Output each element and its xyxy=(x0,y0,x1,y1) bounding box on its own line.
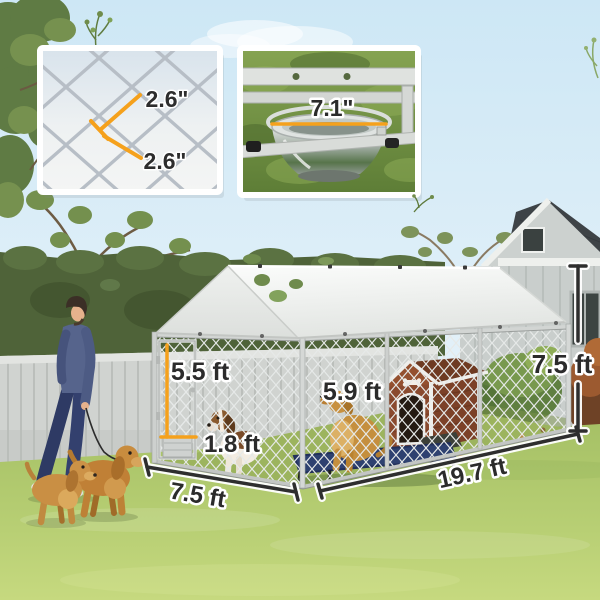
knob xyxy=(246,141,261,152)
house-attic-window xyxy=(522,228,544,252)
door-latch xyxy=(191,388,196,393)
scene: 5.5 ft 1.8 ft 5.9 ft 7.5 ft 19.7 ft 7.5 … xyxy=(0,0,600,600)
door-kick-panel xyxy=(163,436,192,457)
mesh-size-bottom-label: 2.6" xyxy=(144,148,187,174)
interior-height-label: 5.9 ft xyxy=(323,378,382,406)
hand xyxy=(81,402,89,410)
bowl-diameter-label: 7.1" xyxy=(311,95,354,121)
rail-hole xyxy=(344,73,351,80)
door-height-label: 5.5 ft xyxy=(171,358,230,386)
knob xyxy=(385,138,399,148)
door-width-label: 1.8 ft xyxy=(204,431,260,458)
chain-link-closeup xyxy=(30,40,230,200)
inset-mesh-detail: 2.6" 2.6" xyxy=(30,40,230,200)
feeder-rail-top xyxy=(238,68,418,85)
bolt xyxy=(377,127,386,135)
inset-bowl-detail: 7.1" xyxy=(231,48,436,201)
mesh-size-top-label: 2.6" xyxy=(146,86,189,112)
product-image-dog-kennel: 5.5 ft 1.8 ft 5.9 ft 7.5 ft 19.7 ft 7.5 … xyxy=(0,0,600,600)
rail-hole xyxy=(293,73,300,80)
frame-height-label: 7.5 ft xyxy=(532,349,593,379)
